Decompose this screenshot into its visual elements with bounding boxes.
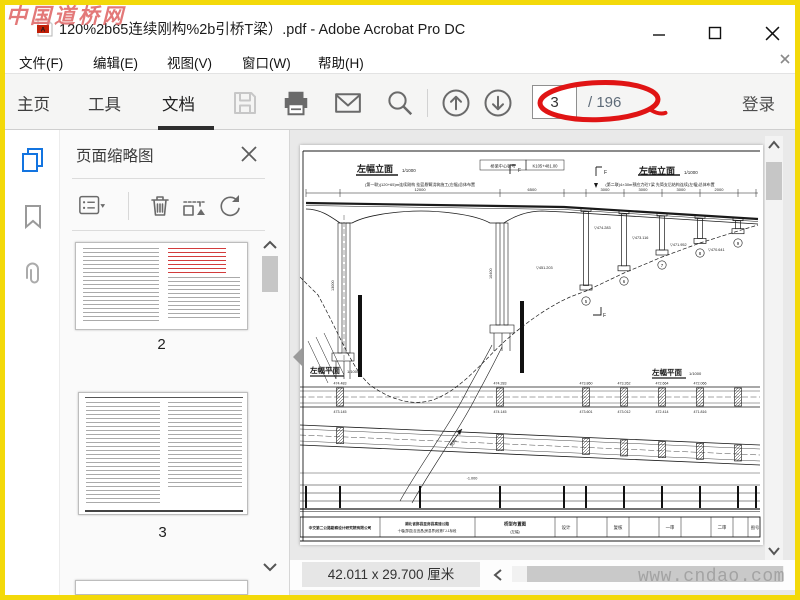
- tab-tools[interactable]: 工具: [88, 91, 121, 115]
- section-letter: F: [518, 168, 521, 174]
- menu-view[interactable]: 视图(V): [163, 50, 216, 74]
- vertical-scrollbar[interactable]: [765, 136, 783, 560]
- fake-footer-rule: [85, 510, 243, 512]
- site-watermark-top: 中国道桥网: [6, 0, 126, 30]
- sign-in-button[interactable]: 登录: [742, 91, 775, 115]
- panel-tools-divider: [128, 192, 129, 220]
- search-icon[interactable]: [385, 88, 415, 118]
- plan-callout: 473.262: [618, 382, 631, 386]
- dim-label: 12000: [414, 187, 426, 192]
- pier-height-dim: 13000: [331, 280, 335, 291]
- dim-label: 3000: [677, 187, 687, 192]
- panel-title: 页面缩略图: [76, 144, 154, 166]
- elev-title-left: 左幅立面: [356, 163, 393, 174]
- pier-height-dim: 10400: [489, 268, 493, 279]
- page-thumbnails-panel: 页面缩略图 2 3: [60, 130, 290, 595]
- plan-scale: 1/1000: [689, 371, 702, 376]
- fake-text-lines: [168, 277, 240, 321]
- plan-callout: 472.664: [656, 382, 669, 386]
- plan-callout: 474.283: [494, 382, 507, 386]
- thumbnail-page-3[interactable]: [78, 392, 248, 515]
- print-icon[interactable]: [281, 88, 311, 118]
- plan-scale: 1/1000: [347, 369, 360, 374]
- elev-callout: ▽451.203: [536, 266, 553, 270]
- thumbnail-page-4-partial[interactable]: [75, 580, 248, 595]
- dim-label: 3000: [601, 187, 611, 192]
- menu-help[interactable]: 帮助(H): [314, 50, 368, 74]
- elev-scale-right: 1/1000: [684, 170, 698, 175]
- panel-separator: [72, 230, 265, 231]
- panel-scroll-down-icon[interactable]: [260, 560, 280, 574]
- pier-number: 7: [661, 263, 664, 268]
- thumbnail-page-2[interactable]: [75, 242, 248, 330]
- menu-edit[interactable]: 编辑(E): [89, 50, 142, 74]
- close-button[interactable]: [757, 21, 787, 45]
- replace-pages-icon[interactable]: [180, 192, 208, 220]
- save-icon[interactable]: [230, 88, 260, 118]
- fake-text-lines: [168, 402, 242, 488]
- previous-page-icon[interactable]: [441, 88, 471, 118]
- thumbnail-label: 3: [76, 524, 249, 541]
- plan-callout: 473.601: [580, 410, 593, 414]
- titleblock-review1: 一审: [666, 524, 675, 531]
- prev-page-float-icon[interactable]: [290, 346, 304, 368]
- panel-scrollbar-thumb[interactable]: [262, 256, 278, 292]
- email-icon[interactable]: [333, 88, 363, 118]
- elev-callout: ▽474.283: [594, 226, 611, 230]
- plan-callout: 473.860: [580, 382, 593, 386]
- pdf-page-canvas: 左幅立面 1/1000 左幅立面 1/1000 桥梁中心桩号 K105+481.…: [300, 145, 763, 545]
- thumbnail-label: 2: [75, 336, 248, 353]
- dim-label: 3000: [639, 187, 649, 192]
- page-number-input[interactable]: [532, 85, 577, 119]
- section-letter: F: [604, 170, 607, 176]
- attachments-icon[interactable]: [19, 260, 47, 288]
- scroll-left-icon[interactable]: [492, 568, 504, 582]
- elev-note-right: (第二联)4×30m预应力砼T梁 先简支后结构连续(左幅)总体布置: [605, 181, 714, 187]
- center-station-value: K105+481.00: [532, 164, 558, 169]
- scroll-up-icon[interactable]: [767, 140, 781, 150]
- plan-callout: 474.483: [334, 382, 347, 386]
- plan-callout: 473.012: [618, 410, 631, 414]
- plan-callout: 473.145: [334, 410, 347, 414]
- plan-callout: 471.816: [694, 410, 707, 414]
- fake-header-rule: [85, 397, 243, 398]
- pier-number: 5: [585, 299, 588, 304]
- fake-red-text-lines: [168, 248, 226, 274]
- titleblock-sheetno: 图号: [751, 525, 759, 531]
- site-watermark-bottom: www.cndao.com: [638, 567, 785, 587]
- section-letter: F: [603, 313, 606, 319]
- vertical-scrollbar-thumb[interactable]: [766, 162, 782, 200]
- titleblock-project-1: 湖北省郧县至房县高速公路: [405, 521, 450, 526]
- elev-callout: ▽471.952: [670, 243, 687, 247]
- pier-number: 6: [623, 279, 626, 284]
- menu-bar: 文件(F) 编辑(E) 视图(V) 窗口(W) 帮助(H): [5, 47, 795, 73]
- main-toolbar: 主页 工具 文档 / 196 登录: [5, 73, 795, 130]
- titleblock-company: 中交第二公路勘察设计研究院有限公司: [309, 525, 372, 530]
- maximize-button[interactable]: [700, 21, 730, 45]
- elev-scale-left: 1/1000: [402, 168, 416, 173]
- page-thumbnails-icon[interactable]: [19, 146, 47, 174]
- plan-callout: 472.066: [694, 382, 707, 386]
- menu-window[interactable]: 窗口(W): [238, 50, 295, 74]
- elev-callout: ▽473.116: [632, 236, 648, 240]
- dim-label: 6500: [528, 187, 538, 192]
- elev-callout: ▽470.641: [708, 248, 725, 252]
- thumbnail-options-icon[interactable]: [78, 192, 106, 220]
- plan-callout: 474.145: [494, 410, 507, 414]
- tab-home[interactable]: 主页: [17, 91, 50, 115]
- pier-number: 8: [699, 251, 702, 256]
- panel-scroll-up-icon[interactable]: [260, 238, 280, 252]
- titleblock-check: 复核: [614, 524, 623, 531]
- document-size-label: 42.011 x 29.700 厘米: [302, 562, 480, 587]
- center-station-label: 桥梁中心桩号: [490, 163, 515, 170]
- bridge-drawing: 左幅立面 1/1000 左幅立面 1/1000 桥梁中心桩号 K105+481.…: [300, 145, 763, 545]
- titleblock-sheet-sub: (左幅): [510, 529, 519, 534]
- toolbar-divider: [427, 89, 428, 117]
- scroll-down-icon[interactable]: [767, 546, 781, 556]
- tab-document[interactable]: 文档: [162, 91, 195, 115]
- fake-text-lines: [83, 248, 159, 324]
- titleblock-project-2: 十堰(郧县)至宜昌(房县界)段第TJ-1标段: [398, 528, 457, 533]
- menu-file[interactable]: 文件(F): [15, 50, 67, 74]
- navigation-rail: [5, 130, 60, 595]
- minimize-button[interactable]: [644, 21, 674, 45]
- plan-title-left: 左幅平面: [309, 365, 340, 375]
- titleblock-sheet-name: 桥型布置图: [504, 521, 527, 528]
- flow-direction-label: 流向: [448, 438, 458, 448]
- bookmarks-icon[interactable]: [19, 203, 47, 231]
- pier-number: 9: [737, 241, 740, 246]
- delete-pages-icon[interactable]: [146, 192, 174, 220]
- panel-separator: [72, 178, 265, 179]
- titleblock-review2: 二审: [718, 524, 727, 531]
- titleblock-design: 设计: [562, 524, 571, 531]
- menubar-close-icon[interactable]: [779, 53, 791, 65]
- fake-text-lines: [86, 402, 160, 506]
- panel-close-icon[interactable]: [238, 143, 260, 165]
- dim-label: 2000: [715, 187, 725, 192]
- plan-title-right: 左幅平面: [651, 367, 682, 377]
- document-viewport: 左幅立面 1/1000 左幅立面 1/1000 桥梁中心桩号 K105+481.…: [290, 130, 795, 595]
- profile-grade-label: -1.000: [467, 477, 478, 481]
- plan-callout: 472.414: [656, 410, 669, 414]
- elev-title-right: 左幅立面: [638, 165, 675, 176]
- next-page-icon[interactable]: [483, 88, 513, 118]
- page-count-label: / 196: [588, 94, 621, 111]
- rotate-pages-icon[interactable]: [216, 192, 244, 220]
